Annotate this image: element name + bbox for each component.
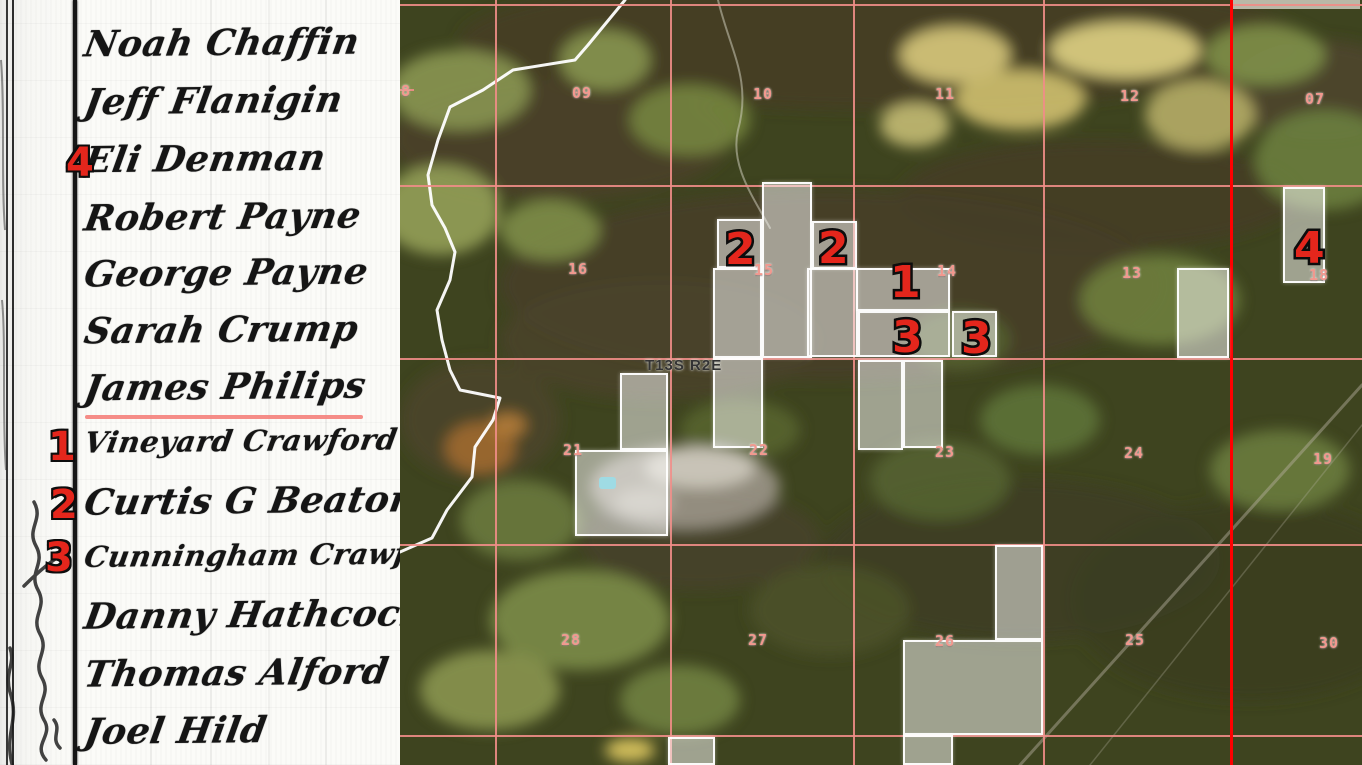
handwritten-name: George Payne	[81, 251, 371, 296]
map-red-marker: 4	[1294, 227, 1325, 271]
highlighted-parcel[interactable]	[713, 268, 762, 358]
red-reference-number: 1	[48, 427, 76, 467]
section-grid-line-v	[853, 0, 855, 765]
section-grid-line-v	[495, 0, 497, 765]
section-number: 09	[572, 84, 592, 102]
screen: Noah ChaffinJeff FlaniginEli DenmanRober…	[0, 0, 1362, 765]
handwritten-name: Sarah Crump	[81, 308, 361, 353]
map-red-marker: 3	[892, 316, 923, 360]
highlighted-parcel[interactable]	[903, 360, 943, 448]
section-number: 27	[748, 631, 768, 649]
section-number: 15	[754, 261, 774, 279]
section-number: 16	[568, 260, 588, 278]
handwritten-name: Vineyard Crawford	[82, 422, 400, 459]
section-number: 10	[753, 85, 773, 103]
range-boundary-line	[1230, 0, 1233, 765]
highlighted-parcel[interactable]	[995, 545, 1043, 640]
section-number: 19	[1313, 450, 1333, 468]
highlighted-parcel[interactable]	[903, 640, 1043, 735]
section-number: 11	[935, 85, 955, 103]
highlighted-parcel[interactable]	[575, 450, 668, 536]
township-range-label: T13S R2E	[645, 357, 722, 374]
section-number: 21	[563, 441, 583, 459]
section-number: 22	[749, 441, 769, 459]
handwritten-name: Thomas Alford	[81, 650, 391, 695]
red-reference-number: 3	[45, 538, 73, 578]
map-red-marker: 2	[725, 228, 756, 272]
section-number: 12	[1120, 87, 1140, 105]
handwritten-name: Noah Chaffin	[81, 21, 362, 66]
satellite-map-panel[interactable]: 0809101112071615141318212223241928272625…	[400, 0, 1362, 765]
highlighted-parcel[interactable]	[858, 360, 903, 450]
section-grid-line-v	[670, 0, 672, 765]
section-grid-line-h	[400, 735, 1362, 737]
handwritten-name: Curtis G Beaton	[81, 478, 400, 523]
section-grid-line-h	[400, 544, 1362, 546]
section-number: 30	[1319, 634, 1339, 652]
handwritten-name: Danny Hathcock	[81, 592, 400, 638]
red-reference-number: 2	[50, 485, 78, 525]
section-grid-line-v	[1043, 0, 1045, 765]
section-grid-line-h	[400, 4, 1362, 6]
section-number: 25	[1125, 631, 1145, 649]
highlighted-parcel[interactable]	[668, 737, 715, 765]
handwritten-name: Jeff Flanigin	[81, 79, 346, 124]
section-number: 24	[1124, 444, 1144, 462]
handwritten-name: Cunningham Crawford	[82, 536, 400, 574]
section-grid-line-h	[400, 185, 1362, 187]
map-red-marker: 3	[961, 317, 992, 361]
section-number: 26	[935, 632, 955, 650]
section-number: 13	[1122, 264, 1142, 282]
handwritten-name: James Philips	[81, 365, 369, 410]
map-red-marker: 1	[890, 261, 921, 305]
handwritten-name: Joel Hild	[81, 709, 269, 753]
map-red-marker: 2	[818, 227, 849, 271]
section-number: 08	[400, 82, 411, 100]
section-number: 07	[1305, 90, 1325, 108]
highlighted-parcel[interactable]	[807, 268, 858, 357]
section-number: 23	[935, 443, 955, 461]
section-number: 28	[561, 631, 581, 649]
red-reference-number: 4	[66, 143, 94, 183]
section-number: 14	[937, 262, 957, 280]
highlighted-parcel[interactable]	[903, 735, 953, 765]
census-document-panel: Noah ChaffinJeff FlaniginEli DenmanRober…	[0, 0, 400, 765]
highlighted-parcel[interactable]	[1177, 268, 1229, 358]
handwritten-name: Robert Payne	[81, 195, 364, 240]
highlighted-parcel[interactable]	[620, 373, 668, 450]
handwritten-name: Eli Denman	[81, 137, 329, 182]
philips-underline	[85, 415, 363, 419]
